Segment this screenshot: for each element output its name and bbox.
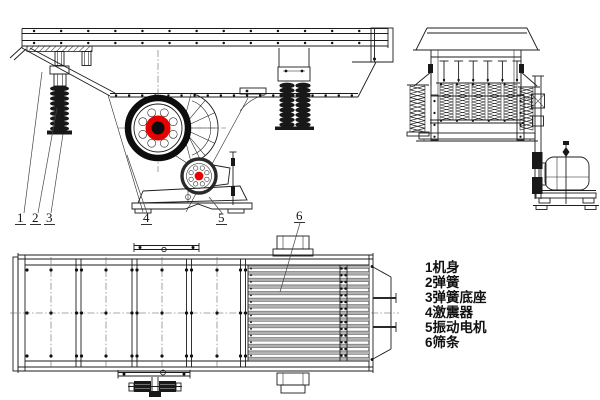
end-view <box>407 28 599 210</box>
pedestal-bottom <box>277 373 309 393</box>
outer-spring-left <box>407 64 433 136</box>
spring-bank <box>430 84 524 123</box>
grizzly-strip <box>27 46 92 52</box>
spring-base-left <box>47 131 72 135</box>
legend-item-1: 1机身 <box>425 259 460 275</box>
spring-base-rear <box>275 127 314 131</box>
drive-column <box>524 76 545 199</box>
tension-rod <box>230 152 237 205</box>
vibrating-feeder-drawing: 1 2 3 4 5 <box>0 0 600 400</box>
legend-item-2: 2弹簧 <box>425 274 460 290</box>
plan-view: 6 <box>10 208 399 397</box>
callout-6: 6 <box>296 208 303 223</box>
body-ribs <box>440 61 522 82</box>
motor-red-hub <box>195 172 204 181</box>
outer-spring-right <box>518 64 540 130</box>
callout-1: 1 <box>17 210 24 225</box>
spring-bracket-top <box>134 243 199 252</box>
callout-3: 3 <box>46 210 53 225</box>
callout-5: 5 <box>218 210 225 225</box>
trough-body <box>22 48 393 111</box>
side-view: 1 2 3 4 5 <box>10 28 393 225</box>
main-spring <box>50 86 69 132</box>
support-legs <box>55 52 91 66</box>
callout-numbers: 1 2 3 4 5 <box>15 210 227 225</box>
exciter-plan <box>118 370 190 397</box>
legend-item-3: 3弹簧底座 <box>425 289 487 305</box>
spring-mount-left <box>50 66 69 86</box>
legend-item-5: 5振动电机 <box>425 319 487 335</box>
legend: 1机身 2弹簧 3弹簧底座 4激震器 5振动电机 6筛条 <box>425 259 487 350</box>
callout-2: 2 <box>32 210 39 225</box>
exciter-flywheel <box>118 50 226 172</box>
drive-motor <box>539 141 589 204</box>
rear-spring-b <box>295 83 310 128</box>
callout-4: 4 <box>143 210 150 225</box>
deck <box>10 29 388 61</box>
legend-item-4: 4激震器 <box>425 304 474 320</box>
hopper-flare <box>413 28 540 50</box>
rear-spring-a <box>279 83 294 128</box>
rear-spring-hanger <box>278 48 310 81</box>
legend-item-6: 6筛条 <box>425 334 460 350</box>
screen-bars <box>248 266 369 362</box>
engineering-drawing-page: 1 2 3 4 5 <box>0 0 600 400</box>
